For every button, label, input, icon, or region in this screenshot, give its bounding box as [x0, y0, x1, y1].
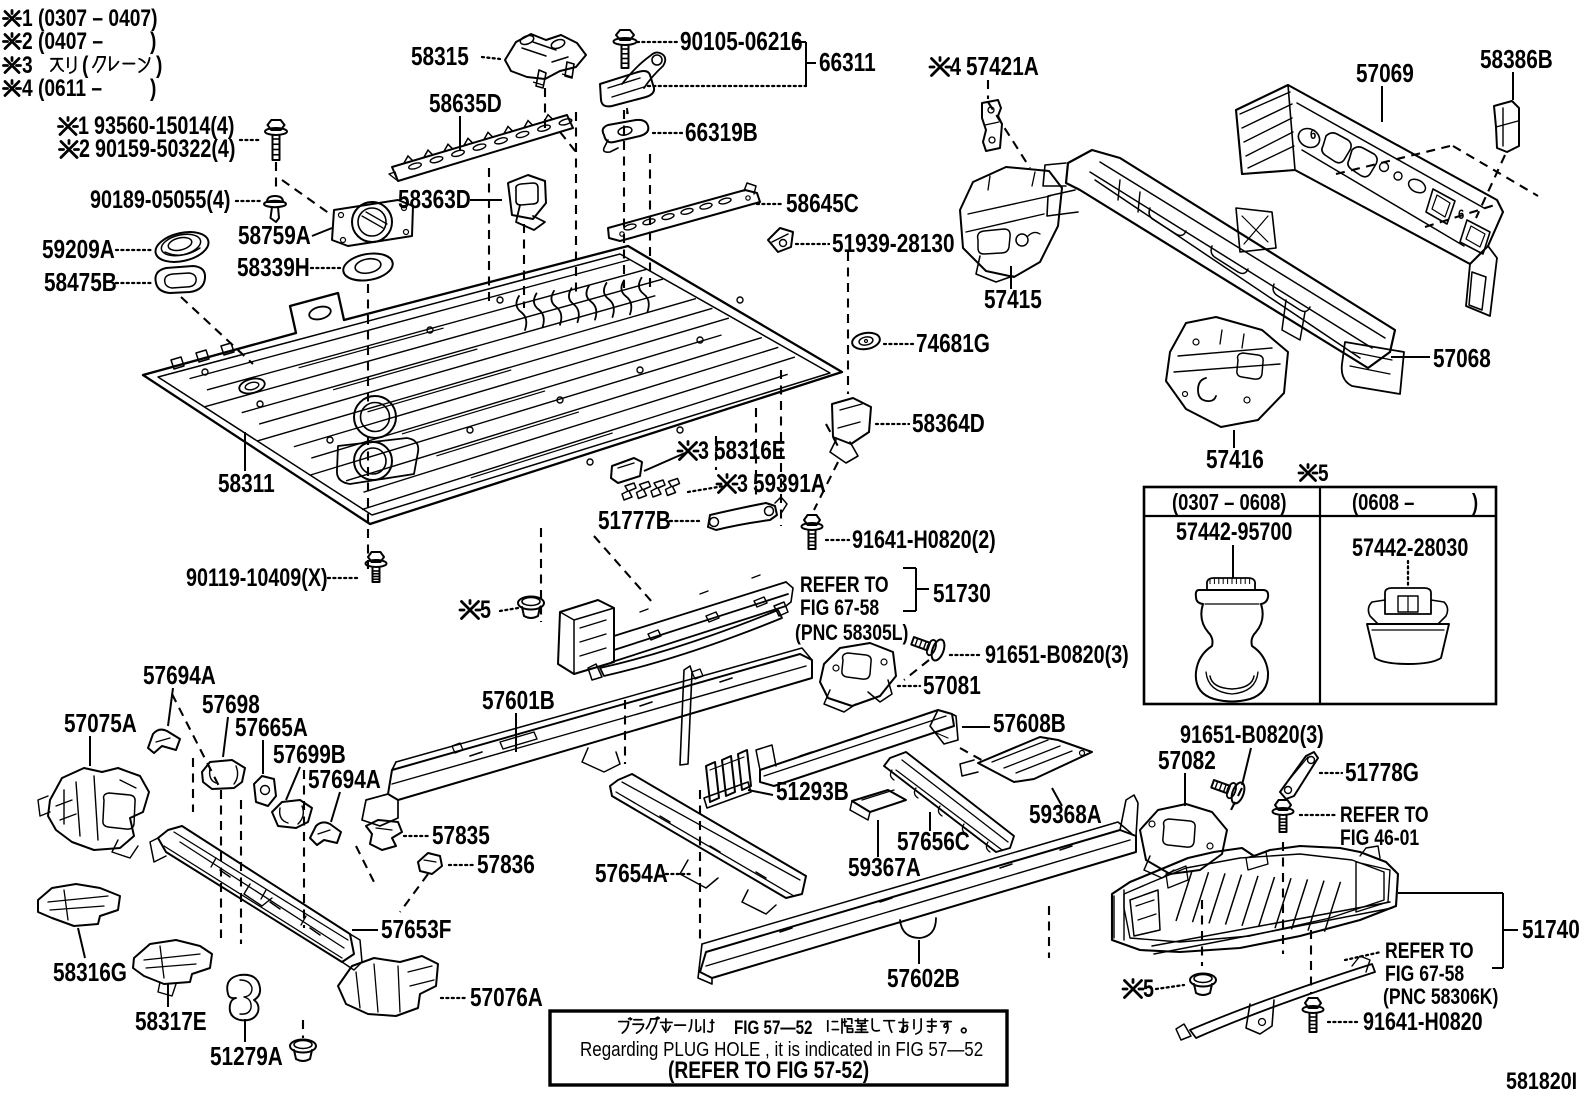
- svg-text:57075A: 57075A: [64, 709, 137, 738]
- svg-text:57608B: 57608B: [993, 709, 1066, 738]
- svg-text:57421A: 57421A: [966, 52, 1039, 81]
- svg-text:REFER TO: REFER TO: [1340, 803, 1429, 827]
- svg-text:91651-B0820(3): 91651-B0820(3): [1180, 721, 1324, 749]
- svg-text:FIG 57—52: FIG 57—52: [734, 1016, 812, 1038]
- svg-text:(0307 – 0608): (0307 – 0608): [1172, 490, 1287, 515]
- svg-text:51730: 51730: [933, 579, 991, 608]
- svg-text:57656C: 57656C: [897, 827, 970, 856]
- svg-text:(REFER TO FIG 57-52): (REFER TO FIG 57-52): [668, 1056, 869, 1084]
- svg-text:57694A: 57694A: [308, 765, 381, 794]
- svg-text:59367A: 59367A: [848, 853, 921, 882]
- svg-text:57836: 57836: [477, 850, 535, 879]
- svg-text:57602B: 57602B: [887, 964, 960, 993]
- svg-text:58316G: 58316G: [53, 958, 127, 987]
- svg-text:91651-B0820(3): 91651-B0820(3): [985, 641, 1129, 669]
- svg-text:(0608 –: (0608 –: [1352, 490, 1414, 515]
- svg-text:6: 6: [1310, 127, 1316, 142]
- svg-text:58635D: 58635D: [429, 89, 502, 118]
- svg-text:57442-95700: 57442-95700: [1176, 518, 1292, 546]
- svg-text:58364D: 58364D: [912, 409, 985, 438]
- svg-text:51939-28130: 51939-28130: [832, 229, 955, 258]
- svg-text:51279A: 51279A: [210, 1042, 283, 1071]
- svg-text:57076A: 57076A: [470, 983, 543, 1012]
- svg-text:(: (: [82, 51, 89, 79]
- svg-text:51777B: 51777B: [598, 506, 671, 535]
- svg-text:57415: 57415: [984, 285, 1042, 314]
- svg-text:FIG 67-58: FIG 67-58: [800, 596, 879, 620]
- svg-text:58311: 58311: [218, 469, 275, 498]
- svg-text:(PNC 58306K): (PNC 58306K): [1383, 985, 1498, 1009]
- svg-text:57835: 57835: [432, 821, 490, 850]
- svg-text:FIG 67-58: FIG 67-58: [1385, 962, 1464, 986]
- svg-text:4: 4: [950, 53, 961, 81]
- svg-text:58339H: 58339H: [237, 253, 310, 282]
- svg-text:581820I: 581820I: [1506, 1067, 1577, 1094]
- svg-text:59368A: 59368A: [1029, 800, 1102, 829]
- svg-text:58386B: 58386B: [1480, 45, 1553, 74]
- svg-text:57069: 57069: [1356, 59, 1414, 88]
- svg-text:2: 2: [79, 135, 90, 163]
- svg-text:51740: 51740: [1522, 915, 1580, 944]
- svg-text:57654A: 57654A: [595, 859, 668, 888]
- svg-text:): ): [1472, 490, 1478, 515]
- svg-text:REFER TO: REFER TO: [1385, 939, 1474, 963]
- svg-text:58759A: 58759A: [238, 221, 311, 250]
- svg-text:51778G: 51778G: [1345, 758, 1419, 787]
- svg-text:90189-05055(4): 90189-05055(4): [90, 186, 230, 214]
- svg-text:57416: 57416: [1206, 445, 1264, 474]
- svg-text:66319B: 66319B: [685, 118, 758, 147]
- svg-text:FIG 46-01: FIG 46-01: [1340, 826, 1419, 850]
- svg-text:57665A: 57665A: [235, 713, 308, 742]
- svg-text:57068: 57068: [1433, 344, 1491, 373]
- svg-text:58475B: 58475B: [44, 268, 117, 297]
- svg-text:3: 3: [698, 437, 709, 465]
- svg-text:57694A: 57694A: [143, 661, 216, 690]
- svg-text:5: 5: [480, 596, 491, 624]
- svg-text:58315: 58315: [411, 42, 469, 71]
- svg-text:58363D: 58363D: [398, 185, 471, 214]
- svg-text:91641-H0820(2): 91641-H0820(2): [852, 526, 996, 554]
- svg-text:59391A: 59391A: [753, 469, 826, 498]
- svg-text:57081: 57081: [923, 671, 981, 700]
- svg-text:57442-28030: 57442-28030: [1352, 534, 1468, 562]
- svg-text:90159-50322(4): 90159-50322(4): [95, 135, 235, 163]
- svg-text:74681G: 74681G: [916, 329, 990, 358]
- svg-text:58316E: 58316E: [714, 436, 786, 465]
- svg-text:58645C: 58645C: [786, 189, 859, 218]
- svg-text:57601B: 57601B: [482, 686, 555, 715]
- svg-text:59209A: 59209A: [42, 235, 115, 264]
- svg-text:58317E: 58317E: [135, 1007, 207, 1036]
- svg-text:90105-06216: 90105-06216: [680, 27, 803, 56]
- svg-text:(0407 –: (0407 –: [38, 27, 103, 55]
- svg-text:4: 4: [22, 74, 33, 102]
- svg-text:REFER TO: REFER TO: [800, 573, 889, 597]
- svg-text:57082: 57082: [1158, 746, 1216, 775]
- svg-text:57653F: 57653F: [381, 915, 452, 944]
- svg-text:(0611 –: (0611 –: [38, 74, 102, 102]
- svg-text:): ): [156, 51, 162, 79]
- svg-text:91641-H0820: 91641-H0820: [1363, 1008, 1483, 1036]
- svg-text:5: 5: [1143, 975, 1154, 1003]
- svg-text:(PNC 58305L): (PNC 58305L): [795, 621, 908, 645]
- svg-text:3: 3: [737, 470, 748, 498]
- svg-text:90119-10409(X): 90119-10409(X): [186, 564, 328, 592]
- svg-text:66311: 66311: [819, 48, 876, 77]
- svg-text:5: 5: [1318, 459, 1329, 487]
